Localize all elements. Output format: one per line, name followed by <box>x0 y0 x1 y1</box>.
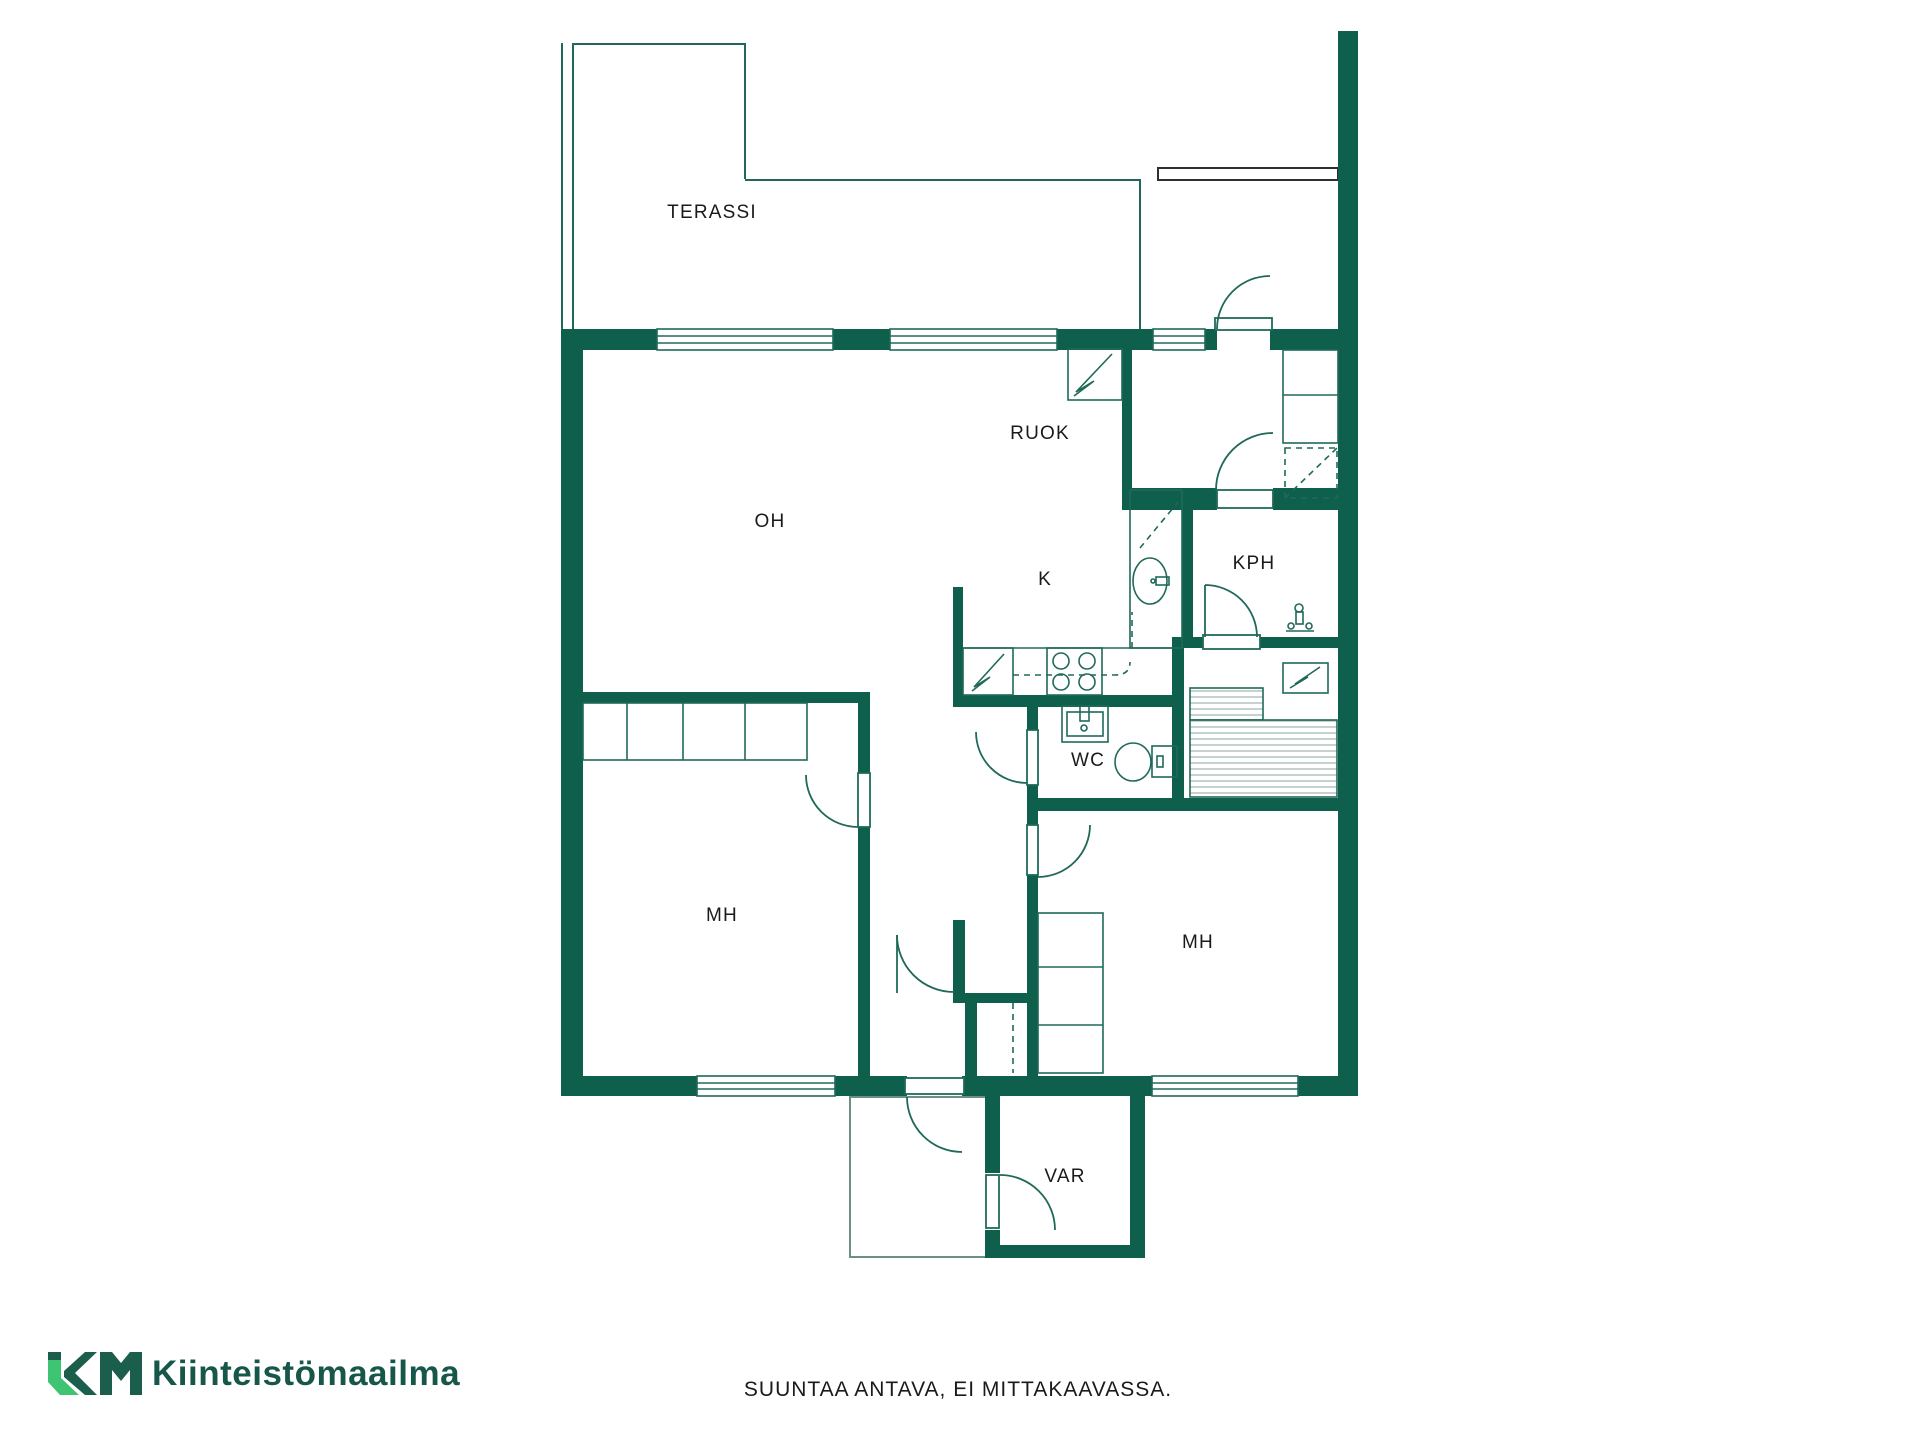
sauna <box>1190 663 1337 797</box>
room-label-mh-right: MH <box>1182 932 1214 954</box>
stove-icon <box>1047 648 1102 695</box>
kitchen-fixtures <box>963 349 1182 695</box>
room-label-mh-left: MH <box>706 905 738 927</box>
window <box>697 1076 835 1096</box>
room-label-terassi: TERASSI <box>667 202 757 224</box>
room-label-oh: OH <box>755 511 786 533</box>
window <box>1153 329 1205 350</box>
room-label-ruok: RUOK <box>1010 423 1070 445</box>
hall-lobby-door <box>897 935 954 993</box>
bedroom-right-door <box>1027 825 1090 877</box>
floor-plan-page: TERASSI RUOK OH K KPH WC MH MH VAR Kiint… <box>0 0 1920 1440</box>
km-logo-icon <box>48 1352 142 1395</box>
toilet-icon <box>1115 743 1177 781</box>
shower-faucet-icon <box>1286 604 1314 631</box>
wc-door <box>976 730 1038 785</box>
room-label-kph: KPH <box>1233 553 1276 575</box>
entrance-door <box>1215 276 1272 350</box>
disclaimer-text: SUUNTAA ANTAVA, EI MITTAKAAVASSA. <box>744 1378 1172 1402</box>
room-label-wc: WC <box>1071 750 1105 772</box>
counter-column <box>1130 490 1182 648</box>
entry-porch-outline <box>1158 168 1338 180</box>
closet-row-left-bedroom <box>583 703 807 760</box>
sauna-door <box>1203 585 1260 649</box>
kph-door <box>1216 433 1273 508</box>
window <box>1152 1076 1298 1096</box>
sauna-bench-upper <box>1190 688 1263 720</box>
terrace-outline <box>562 43 1140 329</box>
wc-sink-icon <box>1062 706 1108 742</box>
bedroom-left-door <box>806 773 870 827</box>
brand-name: Kiinteistömaailma <box>152 1354 460 1394</box>
fireplace-icon <box>1068 349 1122 400</box>
bottom-porch-outline <box>850 1097 987 1257</box>
floor-plan-drawing <box>0 0 1920 1440</box>
kitchen-sink-icon <box>1133 558 1169 604</box>
window <box>657 329 833 350</box>
window <box>890 329 1057 350</box>
room-label-var: VAR <box>1044 1166 1085 1188</box>
closet-column-right-bedroom <box>1038 913 1103 1073</box>
fridge-icon <box>963 648 1013 695</box>
sauna-stove-icon <box>1283 663 1328 693</box>
room-label-k: K <box>1038 569 1052 591</box>
closet-entry-hall <box>1283 350 1338 443</box>
sauna-bench-lower <box>1190 720 1337 797</box>
